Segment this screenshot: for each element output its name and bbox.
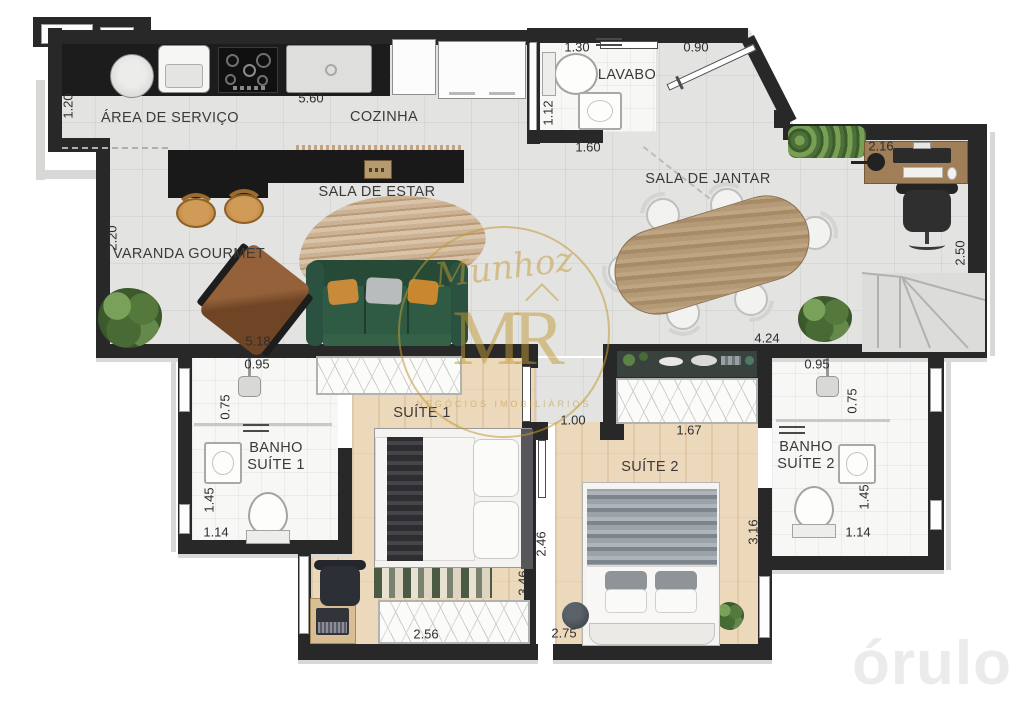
floor-plan: ÁREA DE SERVIÇO COZINHA LAVABO SALA DE J… xyxy=(0,0,1024,703)
wall-suite2-bottom xyxy=(553,644,772,660)
dim-varanda-bottom: 5.18 xyxy=(245,334,270,349)
lavabo-sink xyxy=(578,92,622,130)
burner xyxy=(226,54,239,67)
sofa xyxy=(306,256,468,350)
fridge xyxy=(438,41,526,99)
dim-suite1-wardrobe: 2.56 xyxy=(413,627,438,642)
dim-banho1-bottom: 1.14 xyxy=(203,525,228,540)
office-chair xyxy=(896,182,958,244)
suite1-wardrobe-top xyxy=(316,356,462,395)
sink-basin xyxy=(587,100,613,122)
dim-banho2-bottom: 1.14 xyxy=(845,525,870,540)
webcam xyxy=(913,142,931,149)
suite2-wardrobe xyxy=(616,378,758,424)
banho2-window xyxy=(930,500,942,530)
cooktop xyxy=(218,47,278,93)
chair-seat xyxy=(903,190,951,232)
sink-basin xyxy=(165,64,203,88)
sofa-arm xyxy=(450,262,468,346)
wall-banho1-right-bottom xyxy=(338,448,352,554)
orulo-logo: órulo xyxy=(852,628,1012,699)
stool-back xyxy=(175,193,217,233)
suite1-wardrobe-bottom xyxy=(378,600,530,644)
dashed-line xyxy=(62,147,168,149)
shower-head xyxy=(816,376,839,397)
decor-vase xyxy=(745,356,754,365)
banho1-toilet-tank xyxy=(246,530,290,544)
lavabo-toilet-tank xyxy=(542,52,556,96)
label-suite1: SUÍTE 1 xyxy=(393,405,451,421)
wall-left-upper xyxy=(48,28,62,150)
label-lavabo: LAVABO xyxy=(598,67,656,83)
laundry-tub xyxy=(110,54,154,98)
exterior-line xyxy=(178,554,352,558)
bed-pillow xyxy=(473,501,519,559)
bed-pillow xyxy=(655,589,697,613)
kitchen-cabinet xyxy=(392,39,436,95)
dim-banho1-shower: 0.75 xyxy=(218,394,233,419)
wall-suite2-right-top xyxy=(758,358,772,428)
burner xyxy=(225,74,236,85)
banho1-sink xyxy=(204,442,242,484)
banho2-sink xyxy=(838,444,876,484)
monitor xyxy=(893,148,951,163)
bed-blanket xyxy=(587,489,717,569)
dim-corridor: 1.00 xyxy=(560,413,585,428)
tray-marks xyxy=(369,168,387,172)
sink-basin xyxy=(846,452,868,475)
suite2-sideboard xyxy=(616,350,758,378)
shower-head xyxy=(238,376,261,397)
dim-banho1-top: 0.95 xyxy=(244,357,269,372)
bed-throw-dark xyxy=(387,437,423,561)
wall-banho2-bottom xyxy=(758,556,944,570)
bed-headboard xyxy=(589,623,715,645)
dim-suite1-right: 3.46 xyxy=(516,570,531,595)
dim-banho1-left: 1.45 xyxy=(202,487,217,512)
label-varanda: VARANDA GOURMET xyxy=(113,246,265,262)
decor-plant xyxy=(639,352,648,361)
suite2-door xyxy=(538,440,546,498)
lavabo-toilet-bowl xyxy=(554,53,598,95)
bed-pillow-back xyxy=(605,571,647,591)
dim-entry-top: 0.90 xyxy=(683,40,708,55)
keyboard xyxy=(903,167,943,178)
banho1-window xyxy=(179,368,190,412)
bed-pillow-back xyxy=(655,571,697,591)
pillow-orange xyxy=(407,278,439,305)
bar-tray xyxy=(364,160,392,179)
knobs xyxy=(233,86,265,90)
sink-basin xyxy=(212,451,234,475)
banho2-toilet-tank xyxy=(792,524,836,538)
bed-headboard xyxy=(521,429,533,569)
dim-lavabo-left: 1.12 xyxy=(541,100,556,125)
burner xyxy=(257,75,268,86)
suite1-door xyxy=(522,366,531,422)
chair-base xyxy=(909,240,945,250)
dim-living-right: 2.50 xyxy=(953,240,968,265)
wall-suite1-bottom xyxy=(298,644,538,660)
stool-back xyxy=(223,189,265,229)
label-cozinha: COZINHA xyxy=(350,109,418,125)
lavabo-vent xyxy=(529,42,537,134)
fridge-handle xyxy=(449,92,475,95)
hedge-plant xyxy=(788,126,866,158)
bar-stool xyxy=(224,194,264,224)
dim-banho2-shower: 0.75 xyxy=(845,388,860,413)
label-suite2: SUÍTE 2 xyxy=(621,459,679,475)
pillow-orange xyxy=(327,278,359,305)
banho2-window xyxy=(930,368,942,412)
dim-suite2-left: 2.46 xyxy=(534,531,549,556)
suite1-window xyxy=(299,556,309,634)
suite2-bed xyxy=(582,482,720,646)
dim-desk: 2.16 xyxy=(868,139,893,154)
dim-suite2-bottom: 2.75 xyxy=(551,626,576,641)
bar-stool xyxy=(176,198,216,228)
exterior-line xyxy=(36,80,45,180)
exterior-line xyxy=(171,360,176,552)
bed-pillow xyxy=(605,589,647,613)
towel-bar xyxy=(596,38,622,46)
burner xyxy=(243,64,256,77)
faucet xyxy=(325,64,337,76)
decor-plant xyxy=(623,354,635,366)
kitchen-sink xyxy=(158,45,210,93)
stairs xyxy=(862,262,985,352)
wall-corridor-jamb-east xyxy=(600,422,624,440)
shower-partition xyxy=(776,419,890,422)
dim-jantar-bottom: 4.24 xyxy=(754,331,779,346)
fridge-handle xyxy=(489,92,515,95)
exterior-line xyxy=(946,360,951,570)
decor-dish xyxy=(691,355,717,366)
towel-bar xyxy=(243,424,269,432)
exterior-line xyxy=(36,170,102,179)
dim-suite2-wardrobe: 1.67 xyxy=(676,423,701,438)
bed-pillow xyxy=(473,439,519,497)
lamp-arm xyxy=(851,161,881,164)
label-sala-jantar: SALA DE JANTAR xyxy=(645,171,770,187)
dim-varanda-left: 2.20 xyxy=(105,225,120,250)
decor-books xyxy=(721,356,741,365)
mouse xyxy=(947,167,957,180)
burner xyxy=(256,53,271,68)
suite1-bed xyxy=(374,428,532,568)
laptop xyxy=(316,608,349,635)
banho1-window xyxy=(179,504,190,534)
suite1-desk-chair xyxy=(318,560,364,608)
counter-sink xyxy=(286,45,372,93)
sofa-front-edge xyxy=(323,334,451,346)
label-sala-estar: SALA DE ESTAR xyxy=(319,184,436,200)
suite2-window xyxy=(759,576,770,638)
label-banho1: BANHO SUÍTE 1 xyxy=(247,440,305,474)
wall-suite2-topleft xyxy=(603,358,617,424)
exterior-line xyxy=(990,132,995,356)
label-banho2: BANHO SUÍTE 2 xyxy=(777,439,835,473)
dim-banho2-right: 1.45 xyxy=(857,484,872,509)
dim-lavabo-top: 1.30 xyxy=(564,40,589,55)
exterior-line xyxy=(553,660,772,664)
label-area-servico: ÁREA DE SERVIÇO xyxy=(101,110,239,126)
dim-cozinha-top: 5.60 xyxy=(298,91,323,106)
exterior-line xyxy=(298,660,538,664)
pillow-gray xyxy=(365,277,402,305)
chair-seat xyxy=(320,566,360,606)
decor-dish xyxy=(659,357,683,366)
dim-suite2-right: 3.16 xyxy=(746,519,761,544)
laptop-keyboard xyxy=(318,622,347,633)
dim-servico-left: 1.20 xyxy=(61,93,76,118)
dim-lavabo-bottom: 1.60 xyxy=(575,140,600,155)
towel-bar xyxy=(779,426,805,434)
dim-banho2-top: 0.95 xyxy=(804,357,829,372)
exterior-line xyxy=(758,570,944,574)
